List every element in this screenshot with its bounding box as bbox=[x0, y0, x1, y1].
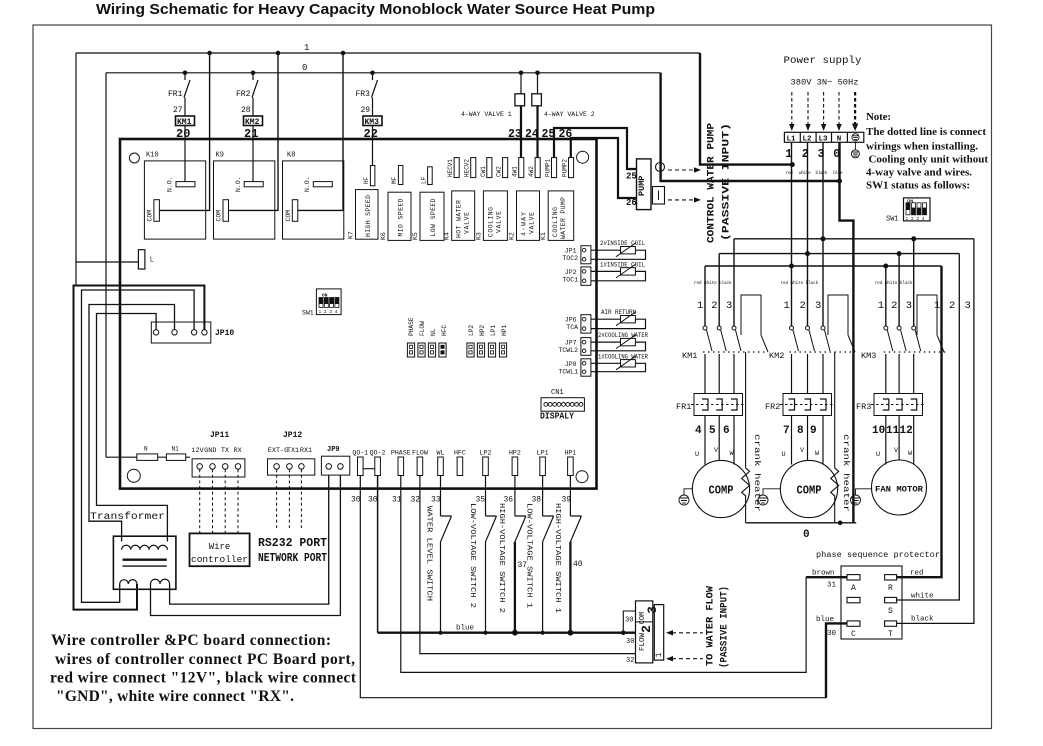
svg-text:COOLING: COOLING bbox=[552, 207, 559, 237]
svg-text:N1: N1 bbox=[172, 446, 180, 453]
svg-text:JP9: JP9 bbox=[327, 446, 340, 454]
svg-text:K3: K3 bbox=[475, 232, 482, 240]
svg-text:black: black bbox=[911, 616, 934, 624]
svg-text:28: 28 bbox=[241, 106, 251, 115]
svg-text:U: U bbox=[695, 451, 699, 459]
svg-text:3: 3 bbox=[726, 300, 732, 312]
svg-text:2#COOLING WATER: 2#COOLING WATER bbox=[598, 332, 648, 339]
svg-text:CW2: CW2 bbox=[496, 166, 503, 177]
svg-text:JP12: JP12 bbox=[283, 431, 302, 440]
svg-text:HOT WATER: HOT WATER bbox=[456, 200, 463, 238]
svg-text:JP2: JP2 bbox=[565, 269, 577, 276]
svg-text:7: 7 bbox=[783, 425, 790, 437]
svg-text:FR3: FR3 bbox=[856, 402, 871, 412]
svg-text:5: 5 bbox=[709, 425, 716, 437]
svg-text:RX: RX bbox=[234, 447, 242, 455]
svg-text:3: 3 bbox=[815, 300, 821, 312]
svg-text:1 2 3 4: 1 2 3 4 bbox=[906, 216, 925, 222]
svg-text:2: 2 bbox=[800, 300, 806, 312]
svg-text:1#COOLING WATER: 1#COOLING WATER bbox=[598, 353, 648, 360]
svg-text:4-way valve and wires.: 4-way valve and wires. bbox=[866, 167, 972, 179]
svg-text:2: 2 bbox=[891, 300, 897, 312]
svg-text:LF: LF bbox=[420, 176, 427, 184]
svg-text:31: 31 bbox=[827, 582, 837, 590]
svg-text:4-WAY: 4-WAY bbox=[521, 212, 528, 236]
svg-text:PUMP: PUMP bbox=[637, 176, 647, 196]
svg-text:red white black: red white black bbox=[694, 281, 732, 286]
svg-text:FLOW: FLOW bbox=[639, 633, 647, 652]
svg-text:0: 0 bbox=[803, 529, 810, 541]
svg-text:RS232 PORT: RS232 PORT bbox=[258, 536, 327, 550]
svg-text:black: black bbox=[816, 171, 828, 176]
svg-text:1: 1 bbox=[878, 300, 884, 312]
svg-text:QO-1: QO-1 bbox=[352, 450, 368, 457]
svg-text:QO-2: QO-2 bbox=[370, 450, 386, 457]
svg-text:Power supply: Power supply bbox=[784, 55, 862, 67]
svg-text:LP1: LP1 bbox=[537, 450, 549, 457]
svg-text:COOLING: COOLING bbox=[488, 207, 495, 237]
svg-text:PUMP2: PUMP2 bbox=[562, 159, 569, 177]
svg-text:LOW SPEED: LOW SPEED bbox=[430, 198, 437, 236]
svg-text:Note:: Note: bbox=[866, 111, 891, 123]
svg-text:1: 1 bbox=[934, 300, 940, 312]
svg-text:Wire: Wire bbox=[209, 542, 231, 552]
svg-text:TCWL2: TCWL2 bbox=[558, 347, 578, 354]
svg-text:N.O.: N.O. bbox=[235, 176, 242, 192]
svg-text:HECV2: HECV2 bbox=[464, 159, 471, 177]
svg-text:K4: K4 bbox=[444, 232, 451, 240]
svg-text:WATER LEVEL SWITCH: WATER LEVEL SWITCH bbox=[425, 506, 433, 601]
svg-text:10: 10 bbox=[872, 425, 885, 437]
svg-text:3: 3 bbox=[965, 300, 971, 312]
svg-text:TOC2: TOC2 bbox=[562, 255, 578, 262]
svg-text:JP7: JP7 bbox=[565, 340, 577, 347]
svg-text:TCA: TCA bbox=[566, 324, 578, 331]
svg-text:JP8: JP8 bbox=[565, 361, 577, 368]
svg-text:COM: COM bbox=[147, 210, 154, 222]
svg-text:32: 32 bbox=[626, 657, 634, 665]
svg-text:HP1: HP1 bbox=[564, 450, 576, 457]
svg-text:30: 30 bbox=[626, 638, 634, 646]
svg-text:Cooling only unit without: Cooling only unit without bbox=[869, 154, 989, 166]
svg-text:HIGH SPEED: HIGH SPEED bbox=[365, 195, 372, 237]
svg-text:blue: blue bbox=[816, 616, 834, 624]
svg-text:T: T bbox=[888, 630, 893, 639]
svg-text:U: U bbox=[876, 451, 880, 459]
svg-text:"GND", white wire connect "RX": "GND", white wire connect "RX". bbox=[56, 688, 294, 705]
svg-text:CONTROL WATER PUMP: CONTROL WATER PUMP bbox=[706, 123, 718, 243]
svg-text:COMP: COMP bbox=[797, 484, 822, 498]
svg-text:VALVE: VALVE bbox=[464, 212, 471, 234]
svg-text:FLOW: FLOW bbox=[412, 450, 428, 457]
svg-text:The dotted line is connect: The dotted line is connect bbox=[866, 126, 986, 138]
svg-text:3: 3 bbox=[906, 300, 912, 312]
svg-text:DISPALY: DISPALY bbox=[540, 411, 574, 422]
svg-text:red white black: red white black bbox=[781, 281, 819, 286]
svg-text:1 2 3 4: 1 2 3 4 bbox=[319, 309, 338, 315]
svg-text:K5: K5 bbox=[412, 232, 419, 240]
svg-text:SW1: SW1 bbox=[302, 310, 314, 317]
svg-text:FR1: FR1 bbox=[168, 90, 183, 99]
svg-text:4W2: 4W2 bbox=[528, 166, 535, 177]
svg-text:1: 1 bbox=[304, 43, 309, 53]
svg-text:LOW-VOLTAGE SWITCH 1: LOW-VOLTAGE SWITCH 1 bbox=[525, 503, 533, 608]
svg-text:controller: controller bbox=[191, 555, 248, 565]
svg-text:R: R bbox=[888, 584, 893, 593]
svg-text:4: 4 bbox=[695, 425, 702, 437]
svg-text:KM3: KM3 bbox=[861, 351, 876, 361]
svg-text:LOW-VOLTAGE SWITCH 2: LOW-VOLTAGE SWITCH 2 bbox=[468, 503, 476, 608]
svg-text:HIGH-VOLTAGE SWITCH 1: HIGH-VOLTAGE SWITCH 1 bbox=[553, 503, 561, 613]
svg-text:HFC: HFC bbox=[441, 325, 448, 336]
svg-text:LP1: LP1 bbox=[490, 325, 497, 336]
svg-text:26: 26 bbox=[626, 198, 637, 208]
svg-text:crank heater: crank heater bbox=[841, 434, 850, 512]
svg-text:EXT-G: EXT-G bbox=[268, 447, 288, 455]
svg-text:N.O.: N.O. bbox=[167, 176, 174, 192]
svg-text:C: C bbox=[851, 630, 856, 639]
svg-text:AIR RETURN: AIR RETURN bbox=[601, 309, 636, 316]
svg-text:32: 32 bbox=[411, 496, 421, 505]
svg-text:LP2: LP2 bbox=[480, 450, 492, 457]
svg-text:wires of controller connect PC: wires of controller connect PC Board por… bbox=[55, 651, 355, 668]
svg-text:wirings when installing.: wirings when installing. bbox=[866, 140, 978, 152]
svg-text:30: 30 bbox=[368, 496, 378, 505]
svg-text:COMP: COMP bbox=[709, 484, 734, 498]
svg-text:HF: HF bbox=[363, 176, 370, 184]
svg-text:VALVE: VALVE bbox=[529, 212, 536, 234]
svg-text:(PASSIVE INPUT): (PASSIVE INPUT) bbox=[721, 123, 733, 241]
svg-text:WATER PUMP: WATER PUMP bbox=[560, 197, 567, 239]
svg-text:red: red bbox=[786, 171, 794, 176]
svg-text:VALVE: VALVE bbox=[496, 211, 503, 233]
svg-text:FLOW: FLOW bbox=[419, 321, 426, 336]
svg-text:PHASE: PHASE bbox=[391, 450, 411, 457]
svg-text:phase sequence protector: phase sequence protector bbox=[816, 550, 940, 560]
svg-text:COM: COM bbox=[216, 210, 223, 222]
svg-text:12V: 12V bbox=[191, 447, 204, 455]
svg-text:Wiring Schematic for Heavy Cap: Wiring Schematic for Heavy Capacity Mono… bbox=[96, 1, 655, 18]
svg-text:K8: K8 bbox=[287, 152, 295, 160]
svg-text:KM1: KM1 bbox=[682, 351, 697, 361]
svg-text:3: 3 bbox=[645, 606, 660, 614]
svg-text:HP2: HP2 bbox=[479, 325, 486, 336]
svg-text:2#INSIDE COIL: 2#INSIDE COIL bbox=[600, 240, 645, 247]
svg-text:4-WAY VALVE 1: 4-WAY VALVE 1 bbox=[461, 111, 512, 118]
svg-text:U: U bbox=[782, 451, 786, 459]
svg-text:HP1: HP1 bbox=[501, 325, 508, 336]
svg-text:2: 2 bbox=[639, 625, 654, 633]
svg-text:FAN MOTOR: FAN MOTOR bbox=[875, 485, 924, 495]
svg-text:9: 9 bbox=[810, 425, 817, 437]
svg-text:white: white bbox=[799, 171, 811, 176]
svg-text:L: L bbox=[150, 257, 154, 265]
svg-text:30: 30 bbox=[827, 630, 837, 638]
svg-text:red: red bbox=[910, 570, 924, 578]
svg-text:PHASE: PHASE bbox=[408, 317, 415, 336]
svg-text:29: 29 bbox=[361, 106, 371, 115]
svg-text:MF: MF bbox=[391, 176, 398, 184]
svg-text:11: 11 bbox=[886, 425, 900, 437]
svg-text:KM3: KM3 bbox=[365, 118, 380, 127]
svg-text:1#INSIDE COIL: 1#INSIDE COIL bbox=[600, 261, 645, 268]
svg-text:SW1 status as follows:: SW1 status as follows: bbox=[866, 180, 970, 192]
svg-text:2: 2 bbox=[711, 300, 717, 312]
svg-text:25: 25 bbox=[626, 172, 637, 182]
svg-text:FR3: FR3 bbox=[356, 90, 371, 99]
svg-text:30: 30 bbox=[351, 496, 361, 505]
svg-text:33: 33 bbox=[431, 496, 441, 505]
svg-text:1: 1 bbox=[655, 652, 664, 657]
svg-text:N: N bbox=[144, 446, 148, 453]
svg-text:K2: K2 bbox=[509, 232, 516, 240]
svg-text:GND: GND bbox=[204, 447, 216, 455]
svg-text:HP2: HP2 bbox=[509, 450, 521, 457]
svg-text:K6: K6 bbox=[380, 232, 387, 240]
svg-text:TCWL1: TCWL1 bbox=[558, 368, 578, 375]
svg-text:JP1: JP1 bbox=[565, 248, 577, 255]
svg-text:0: 0 bbox=[302, 63, 307, 73]
svg-text:blue: blue bbox=[456, 625, 474, 633]
svg-text:FR1: FR1 bbox=[676, 402, 691, 412]
svg-text:40: 40 bbox=[573, 560, 583, 569]
svg-text:SW1: SW1 bbox=[886, 216, 899, 224]
svg-text:RX1: RX1 bbox=[300, 447, 312, 455]
svg-text:KM2: KM2 bbox=[769, 351, 784, 361]
svg-text:S: S bbox=[888, 607, 893, 616]
svg-text:8: 8 bbox=[797, 425, 804, 437]
svg-text:30: 30 bbox=[625, 617, 633, 625]
svg-text:6: 6 bbox=[723, 425, 730, 437]
svg-text:K10: K10 bbox=[146, 152, 159, 160]
svg-text:27: 27 bbox=[173, 106, 183, 115]
svg-text:PUMP1: PUMP1 bbox=[545, 159, 552, 177]
svg-text:Transformer: Transformer bbox=[90, 511, 165, 523]
svg-text:CN1: CN1 bbox=[551, 389, 564, 397]
svg-text:KM2: KM2 bbox=[245, 118, 260, 127]
svg-text:1: 1 bbox=[784, 300, 790, 312]
svg-text:LP2: LP2 bbox=[468, 325, 475, 336]
svg-text:12: 12 bbox=[900, 425, 913, 437]
svg-text:COM: COM bbox=[285, 210, 292, 222]
svg-text:MID SPEED: MID SPEED bbox=[398, 198, 405, 236]
svg-text:crank heater: crank heater bbox=[752, 434, 761, 512]
svg-text:NL: NL bbox=[430, 328, 437, 336]
svg-text:N.O.: N.O. bbox=[304, 176, 311, 192]
svg-text:brown: brown bbox=[812, 570, 835, 578]
svg-text:(PASSIVE INPUT): (PASSIVE INPUT) bbox=[719, 586, 731, 668]
svg-text:2: 2 bbox=[949, 300, 955, 312]
svg-text:K1: K1 bbox=[540, 232, 547, 240]
svg-text:FR2: FR2 bbox=[765, 402, 780, 412]
svg-text:TO WATER FLOW: TO WATER FLOW bbox=[705, 585, 717, 666]
svg-text:blue: blue bbox=[833, 171, 843, 176]
svg-text:4W1: 4W1 bbox=[512, 166, 519, 177]
svg-text:WL: WL bbox=[437, 450, 445, 457]
svg-text:TX: TX bbox=[221, 447, 229, 455]
svg-text:380V 3N~ 50Hz: 380V 3N~ 50Hz bbox=[791, 78, 859, 88]
svg-text:TX1: TX1 bbox=[287, 447, 299, 455]
svg-text:FR2: FR2 bbox=[236, 90, 251, 99]
svg-text:red wire connect "12V", black: red wire connect "12V", black wire conne… bbox=[50, 670, 357, 687]
svg-text:JP10: JP10 bbox=[215, 329, 234, 338]
svg-text:white: white bbox=[911, 593, 934, 601]
svg-text:Wire controller &PC board conn: Wire controller &PC board connection: bbox=[51, 632, 331, 649]
svg-text:JP6: JP6 bbox=[565, 317, 577, 324]
svg-text:4-WAY VALVE 2: 4-WAY VALVE 2 bbox=[544, 111, 595, 118]
svg-text:K7: K7 bbox=[348, 231, 355, 239]
svg-text:A: A bbox=[851, 584, 856, 593]
svg-text:K9: K9 bbox=[216, 152, 224, 160]
svg-text:red white black: red white black bbox=[875, 281, 913, 286]
svg-text:HIGH-VOLTAGE SWITCH 2: HIGH-VOLTAGE SWITCH 2 bbox=[497, 503, 505, 613]
svg-text:HECV1: HECV1 bbox=[447, 159, 454, 177]
svg-text:JP11: JP11 bbox=[210, 431, 229, 440]
svg-text:CW1: CW1 bbox=[480, 166, 487, 177]
svg-text:KM1: KM1 bbox=[177, 118, 192, 127]
svg-text:TOC1: TOC1 bbox=[562, 276, 578, 283]
svg-text:NETWORK PORT: NETWORK PORT bbox=[258, 551, 327, 565]
svg-text:1: 1 bbox=[697, 300, 703, 312]
svg-text:HFC: HFC bbox=[454, 450, 466, 457]
